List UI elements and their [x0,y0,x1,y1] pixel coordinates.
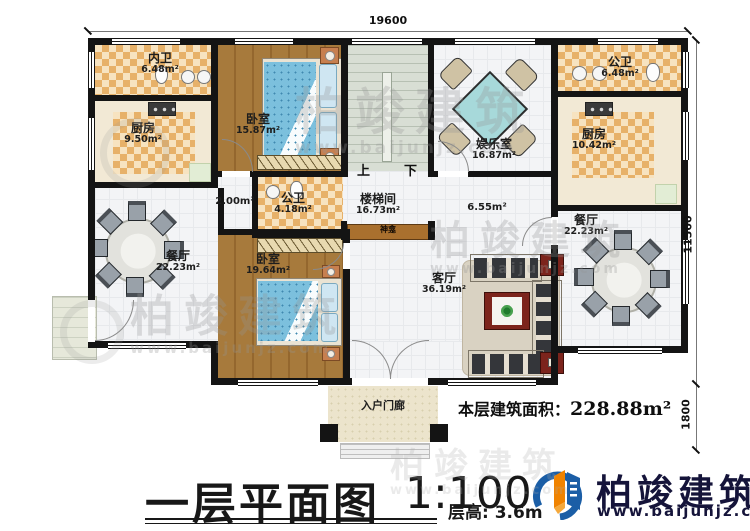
stair-rail [382,72,392,162]
room-label-shrine: 神龛 [380,226,396,234]
wall [218,229,350,235]
sink [572,66,587,81]
nightstand [320,47,339,64]
toilet [646,63,660,82]
room-label-kitchen-right: 厨房10.42m² [572,128,616,151]
wall [428,38,434,177]
wall [88,182,218,188]
kitchen-left-mat [189,163,211,182]
dimension-width: 19600 [369,14,407,27]
room-label-bedroom-bottom: 卧室19.64m² [246,253,290,276]
room-label-public-bath-right: 公卫6.48m² [601,56,639,79]
door-opening [343,243,350,269]
wall [95,95,211,101]
nightstand [322,347,340,361]
room-label-entertainment: 娱乐室16.87m² [472,138,516,161]
window [238,379,318,386]
wall [211,38,218,188]
bed-bottom-pillow [321,283,338,312]
bed-top-duvet [264,62,316,156]
room-label-public-bath-center: 公卫4.18m² [274,192,312,215]
hall-area-annotation: 6.55m² [467,202,506,213]
dimension-height-main: 11500 [682,215,695,255]
kitchen-right-mat [655,184,677,204]
porch-column [320,424,338,442]
floor-area-label: 本层建筑面积： [458,400,570,419]
floor-area-note: 本层建筑面积：228.88m² [458,396,671,420]
window [352,38,422,45]
sofa-bottom [468,350,544,378]
brand-url: www.baijunjz.com [597,502,750,520]
chair [128,201,146,221]
bed-bottom-pillow [321,313,338,342]
stove [148,102,176,116]
stairs-up-label: 上 [357,160,370,179]
room-label-dining-right: 餐厅22.23m² [564,214,608,237]
dimension-line-right [696,40,697,452]
wall [551,38,558,205]
window [88,52,95,88]
room-label-inner-bath: 内卫6.48m² [141,52,179,75]
window [235,38,293,45]
floor-area-value: 228.88m² [570,398,671,420]
wardrobe-top [257,155,343,170]
wall [341,38,348,177]
floor-height: 层高: 3.6m [448,498,543,523]
chair [612,306,630,326]
sofa-top [470,254,542,282]
coffee-table [484,292,530,330]
sink [181,70,195,84]
chair [574,268,594,286]
room-label-kitchen-left: 厨房9.50m² [124,122,162,145]
window [108,342,186,349]
window [578,347,662,354]
dimension-height-porch: 1800 [680,397,693,433]
door-opening [88,300,95,342]
wall [558,91,681,97]
window [448,379,536,386]
dimension-line-top [88,31,688,32]
entry-steps [340,443,430,459]
entry-porch-floor [328,386,438,442]
stove [585,102,613,116]
window [455,38,535,45]
stairs-down-label: 下 [404,160,417,179]
room-label-dining-left: 餐厅22.23m² [156,250,200,273]
window [112,38,180,45]
brand-logo-svg [530,462,588,520]
floor-plan-canvas: 内卫6.48m² 厨房9.50m² 卧室15.87m² 公卫4.18m² 楼梯间… [0,0,750,531]
wall [428,221,435,240]
bed-top-pillow [319,64,337,108]
chair [126,277,144,297]
room-label-stairwell: 楼梯间16.73m² [356,193,400,216]
porch-column [430,424,448,442]
bed-bottom-duvet [258,281,318,341]
chair [650,270,670,288]
brand-logo-icon [530,462,588,520]
window [682,112,689,160]
corridor-area-annotation: 2.00m² [215,196,254,207]
title-underline [145,518,437,524]
room-label-living: 客厅36.19m² [422,272,466,295]
room-label-bedroom-top: 卧室15.87m² [236,113,280,136]
window [88,118,95,170]
door-opening [352,378,428,385]
window [598,38,658,45]
sink [197,70,211,84]
door-opening [551,217,558,245]
chair [614,230,632,250]
room-label-entry-porch: 入户门廊 [361,400,405,412]
window [682,52,689,88]
wall [551,205,688,211]
